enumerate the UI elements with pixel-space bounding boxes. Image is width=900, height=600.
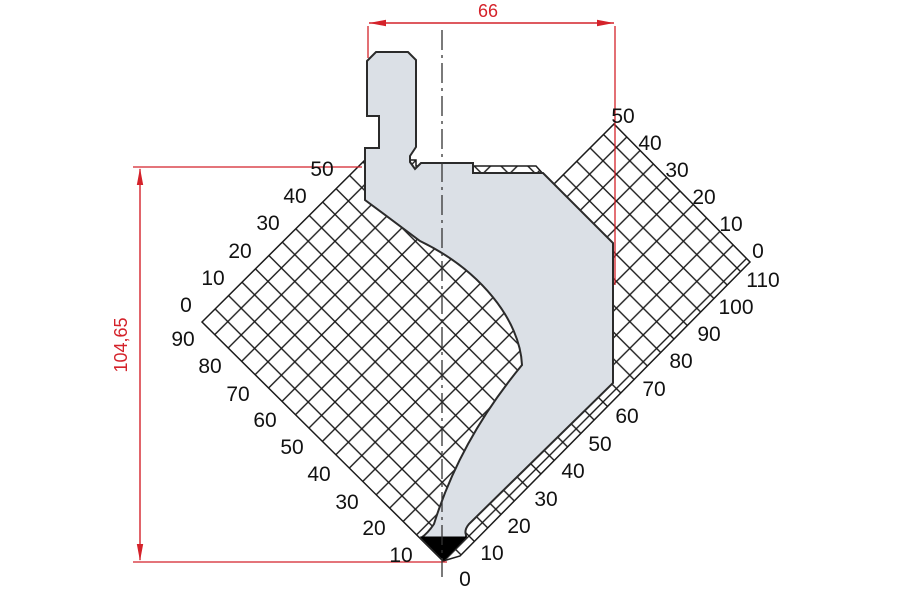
grid-scale-label-lower_left: 10 — [389, 544, 412, 567]
grid-scale-label-upper_left: 0 — [180, 294, 192, 317]
grid-scale-label-upper_right: 10 — [719, 213, 742, 236]
grid-scale-label-upper_right: 0 — [752, 240, 764, 263]
grid-scale-label-upper_left: 20 — [228, 240, 251, 263]
grid-scale-label-upper_right: 20 — [692, 186, 715, 209]
grid-scale-label-lower_right: 90 — [697, 323, 720, 346]
arrow-down-icon — [137, 544, 143, 561]
arrow-right-icon — [597, 20, 614, 26]
arrow-left-icon — [369, 20, 386, 26]
grid-scale-label-upper_left: 50 — [310, 158, 333, 181]
grid-scale-label-lower_right: 40 — [561, 460, 584, 483]
grid-scale-label-lower_right: 0 — [459, 568, 471, 591]
grid-scale-label-lower_left: 40 — [307, 463, 330, 486]
grid-scale-label-lower_right: 60 — [615, 405, 638, 428]
grid-scale-label-upper_left: 40 — [283, 185, 306, 208]
grid-scale-label-upper_left: 10 — [201, 267, 224, 290]
grid-scale-label-lower_left: 80 — [198, 355, 221, 378]
grid-scale-label-lower_right: 50 — [588, 433, 611, 456]
dim-height-value: 104,65 — [111, 317, 131, 372]
drawing-canvas: 66 104,65 504030201009080706050403020100… — [0, 0, 900, 600]
grid-scale-label-lower_right: 70 — [642, 378, 665, 401]
grid-scale-label-lower_left: 90 — [171, 328, 194, 351]
grid-scale-label-lower_left: 20 — [362, 517, 385, 540]
grid-scale-label-lower_left: 50 — [280, 436, 303, 459]
grid-scale-label-upper_right: 50 — [611, 105, 634, 128]
arrow-up-icon — [137, 168, 143, 185]
grid-scale-label-upper_right: 30 — [665, 159, 688, 182]
grid-scale-label-lower_left: 60 — [253, 409, 276, 432]
grid-scale-label-lower_right: 110 — [746, 269, 779, 292]
press-brake-punch-drawing: 66 104,65 504030201009080706050403020100… — [0, 0, 900, 600]
grid-scale-label-lower_left: 30 — [335, 491, 358, 514]
grid-scale-label-upper_right: 40 — [638, 132, 661, 155]
grid-scale-label-lower_right: 10 — [480, 542, 503, 565]
grid-scale-label-lower_right: 20 — [507, 515, 530, 538]
grid-scale-label-lower_left: 70 — [226, 383, 249, 406]
grid-scale-label-lower_right: 100 — [718, 296, 753, 319]
dim-width-value: 66 — [478, 1, 498, 21]
grid-scale-label-lower_right: 30 — [534, 488, 557, 511]
grid-scale-label-lower_right: 80 — [669, 350, 692, 373]
grid-scale-label-upper_left: 30 — [256, 212, 279, 235]
